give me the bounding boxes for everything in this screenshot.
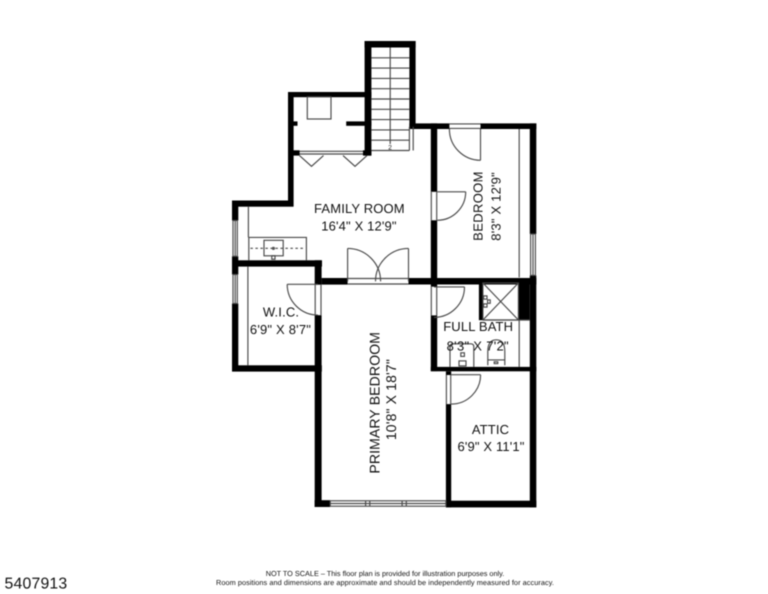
svg-text:16'4" X 12'9": 16'4" X 12'9" [321, 219, 397, 234]
svg-text:Room positions and dimensions: Room positions and dimensions are approx… [216, 578, 554, 587]
svg-text:2: 2 [388, 145, 392, 152]
svg-text:BEDROOM: BEDROOM [470, 171, 485, 241]
svg-text:PRIMARY BEDROOM: PRIMARY BEDROOM [367, 332, 383, 474]
svg-text:8'3" X 12'9": 8'3" X 12'9" [489, 172, 504, 241]
svg-text:10'8" X 18'7": 10'8" X 18'7" [383, 359, 399, 440]
svg-text:NOT TO SCALE – This floor plan: NOT TO SCALE – This floor plan is provid… [266, 569, 505, 578]
svg-text:W.I.C.: W.I.C. [263, 305, 299, 320]
svg-text:ATTIC: ATTIC [472, 422, 509, 437]
svg-text:6'9" X 8'7": 6'9" X 8'7" [250, 322, 311, 337]
svg-text:FAMILY ROOM: FAMILY ROOM [314, 201, 405, 216]
svg-text:6'9" X 11'1": 6'9" X 11'1" [457, 439, 524, 454]
svg-text:8'3" X 7'2": 8'3" X 7'2" [447, 339, 509, 354]
svg-text:5407913: 5407913 [5, 576, 68, 593]
svg-text:FULL BATH: FULL BATH [443, 319, 513, 334]
